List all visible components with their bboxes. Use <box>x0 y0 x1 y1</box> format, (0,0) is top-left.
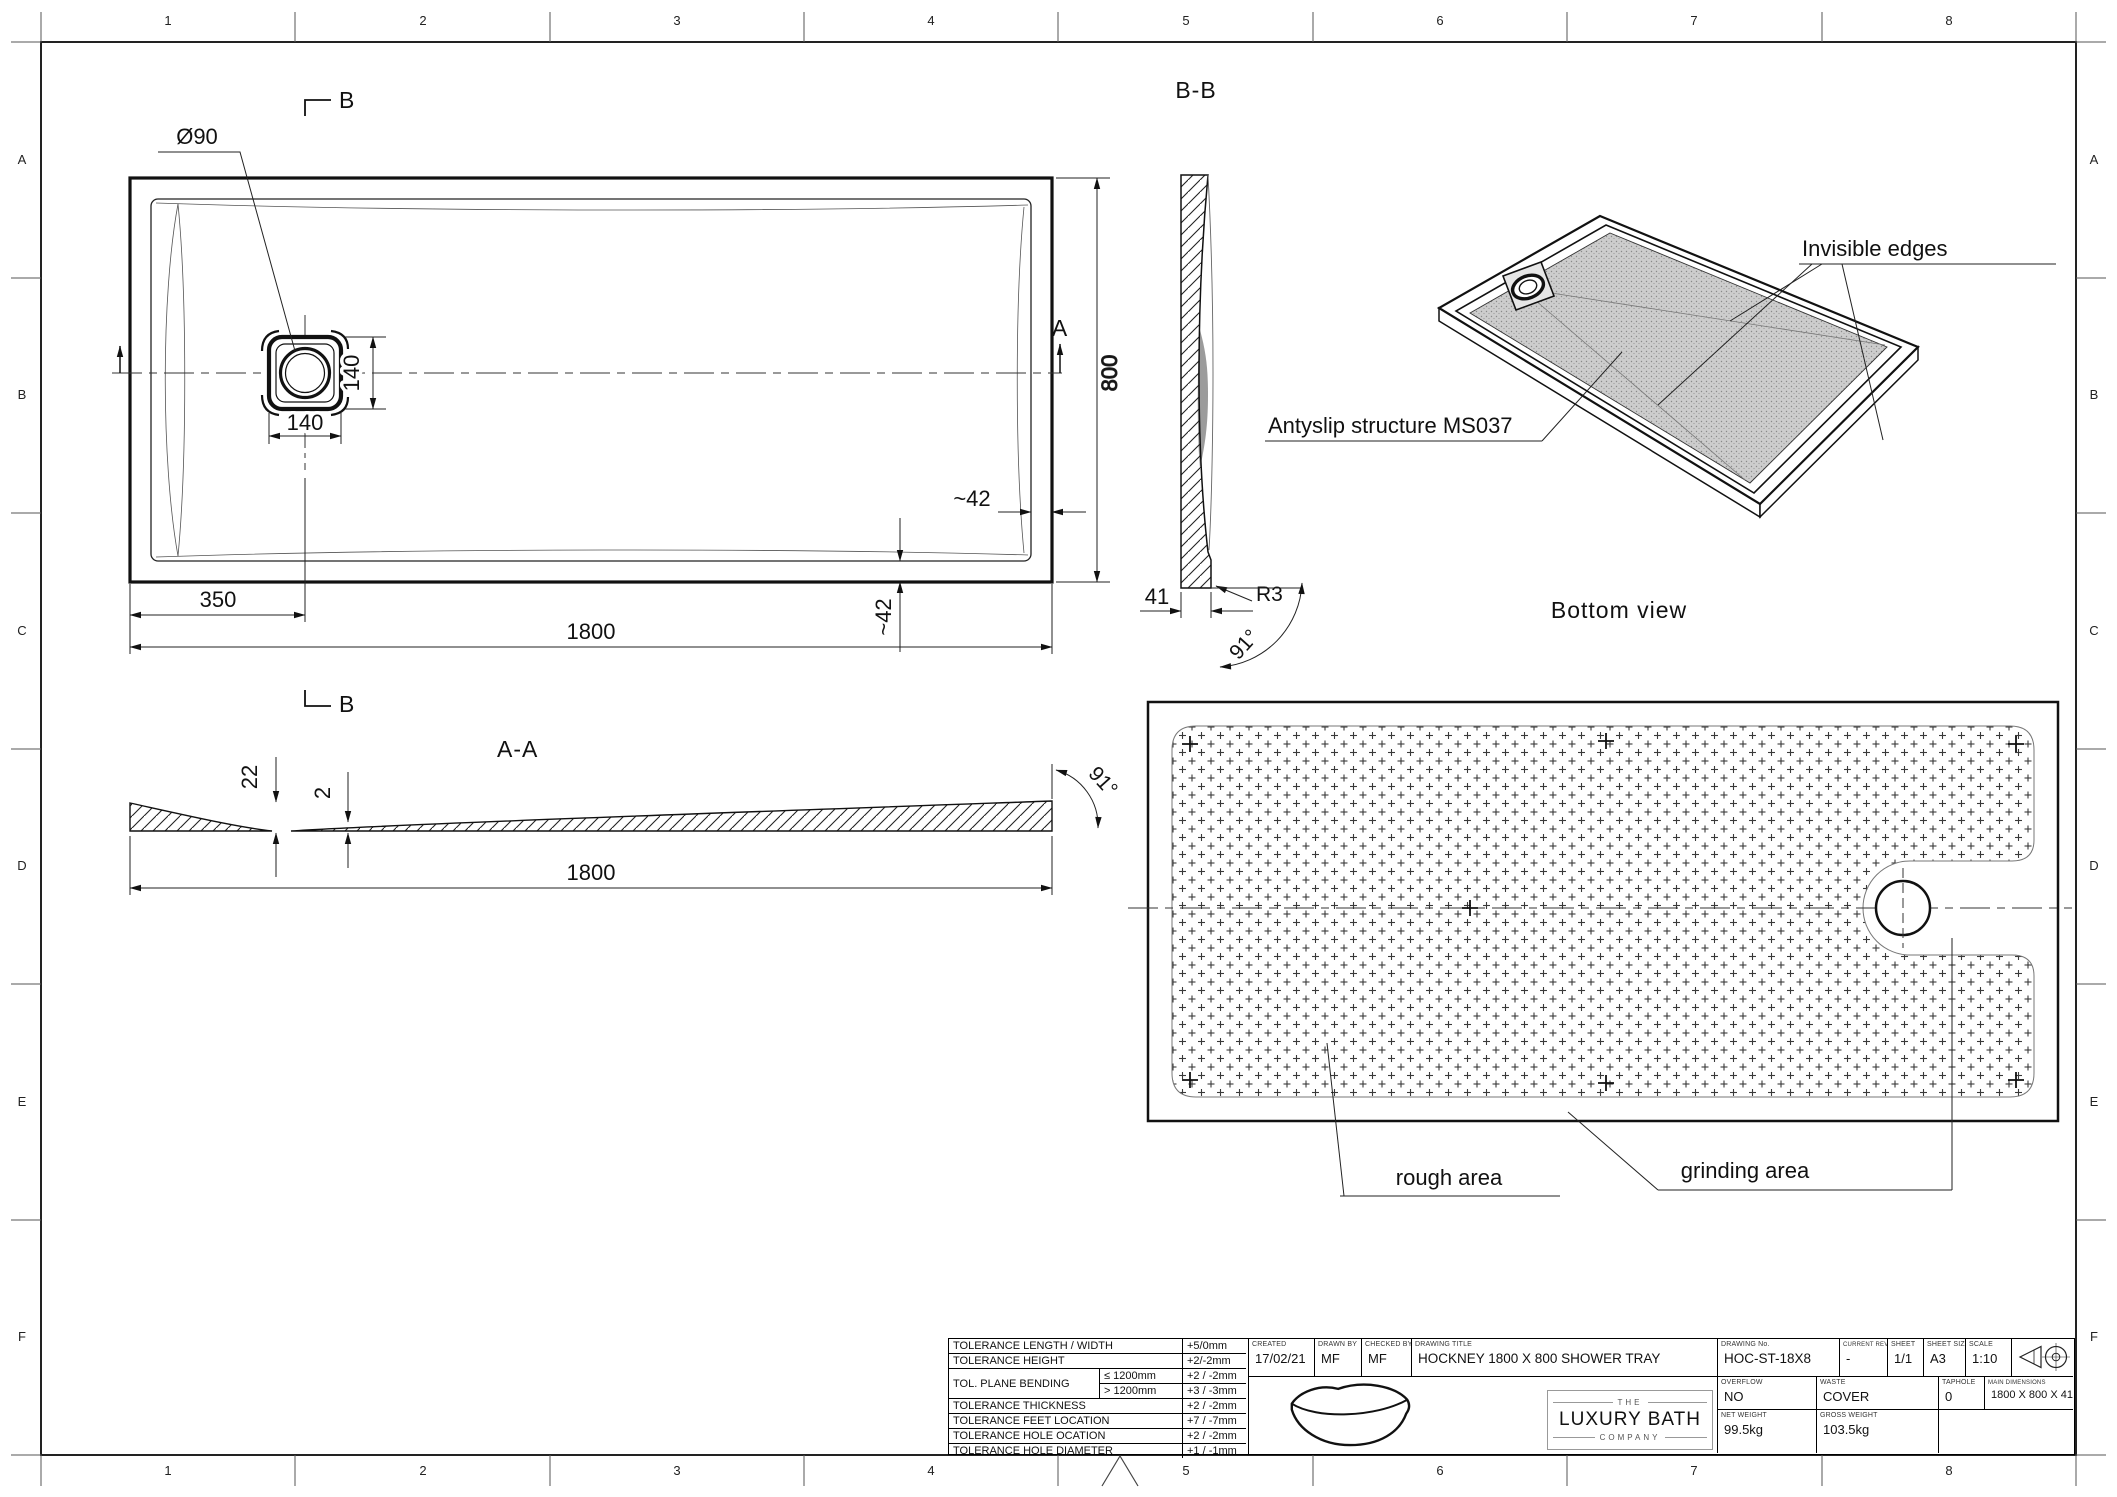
sheet-size-cell: SHEET SIZE A3 <box>1923 1339 1965 1376</box>
marker-b-top: B <box>339 87 355 113</box>
tolerance-label: TOLERANCE HEIGHT <box>949 1354 1182 1369</box>
tolerance-value: +1 / -1mm <box>1182 1444 1246 1458</box>
dim-drain-width: 140 <box>287 410 324 435</box>
grid-row-label: F <box>2083 1329 2105 1344</box>
dim-mid-text: 2 <box>310 787 335 799</box>
current-rev-value: - <box>1840 1349 1887 1366</box>
grid-row-label: D <box>2083 858 2105 873</box>
brand-bottom-text: COMPANY <box>1600 1433 1661 1442</box>
tolerance-label: TOLERANCE HOLE DIAMETER <box>949 1444 1182 1458</box>
section-bb-backface <box>1208 175 1213 550</box>
tolerance-label: TOLERANCE LENGTH / WIDTH <box>949 1339 1182 1354</box>
dim-1800-top: 1800 <box>130 584 1052 654</box>
tolerance-value: +2/-2mm <box>1182 1354 1246 1369</box>
grid-col-label: 7 <box>1683 1463 1705 1478</box>
dim-radius-text: R3 <box>1256 583 1283 606</box>
current-rev-cell: CURRENT REV. - <box>1839 1339 1887 1376</box>
grid-col-label: 1 <box>157 1463 179 1478</box>
antislip-label: Antyslip structure MS037 <box>1268 413 1513 438</box>
taphole-label: TAPHOLE <box>1939 1377 1984 1387</box>
projection-symbol-cell <box>2011 1339 2073 1376</box>
section-b-mark-bottom <box>305 690 331 706</box>
created-cell: CREATED 17/02/21 <box>1249 1339 1314 1376</box>
taphole-value: 0 <box>1939 1387 1984 1404</box>
dim-22: 22 <box>237 757 276 877</box>
first-angle-projection-icon <box>2012 1339 2073 1376</box>
scale-cell: SCALE 1:10 <box>1965 1339 2011 1376</box>
tolerance-value: +2 / -2mm <box>1182 1429 1246 1444</box>
checked-by-label: CHECKED BY <box>1362 1339 1411 1349</box>
main-dimensions-cell: MAIN DIMENSIONS 1800 X 800 X 41 <box>1984 1376 2073 1409</box>
section-bb: B-B 41 R3 91° <box>1140 77 1302 667</box>
dim-rim-right-text: ~42 <box>953 486 990 511</box>
grid-col-label: 5 <box>1175 13 1197 28</box>
grid-col-label: 4 <box>920 1463 942 1478</box>
tolerance-value: +2 / -2mm <box>1182 1399 1246 1414</box>
grid-col-label: 5 <box>1175 1463 1197 1478</box>
current-rev-label: CURRENT REV. <box>1840 1339 1887 1349</box>
overflow-cell: OVERFLOW NO <box>1717 1376 1816 1409</box>
dim-width: 800 <box>1097 355 1122 392</box>
waste-cell: WASTE COVER <box>1816 1376 1938 1409</box>
gross-weight-label: GROSS WEIGHT <box>1817 1410 1938 1420</box>
scale-label: SCALE <box>1966 1339 2011 1349</box>
brand-top-text: THE <box>1618 1398 1643 1407</box>
overflow-value: NO <box>1718 1387 1816 1404</box>
grid-col-label: 3 <box>666 1463 688 1478</box>
sheet-label: SHEET <box>1888 1339 1923 1349</box>
created-label: CREATED <box>1249 1339 1314 1349</box>
tolerance-table: TOLERANCE LENGTH / WIDTH +5/0mm TOLERANC… <box>949 1339 1249 1454</box>
grid-row-label: A <box>2083 152 2105 167</box>
dim-800: 800 <box>1056 178 1122 582</box>
grid-row-label: B <box>2083 387 2105 402</box>
dim-rim-bottom-text: ~42 <box>871 598 896 635</box>
dim-41: 41 <box>1140 584 1253 618</box>
scale-value: 1:10 <box>1966 1349 2011 1366</box>
net-weight-label: NET WEIGHT <box>1718 1410 1816 1420</box>
invisible-edges-label: Invisible edges <box>1802 236 1948 261</box>
dim-offset: 350 <box>200 587 237 612</box>
sheet-size-value: A3 <box>1924 1349 1965 1366</box>
tolerance-condition: ≤ 1200mm <box>1099 1369 1182 1384</box>
overflow-label: OVERFLOW <box>1718 1377 1816 1387</box>
grid-row-label: C <box>11 623 33 638</box>
taphole-cell: TAPHOLE 0 <box>1938 1376 1984 1409</box>
grid-col-label: 3 <box>666 13 688 28</box>
empty-cell <box>1938 1409 2073 1453</box>
grid-col-label: 2 <box>412 1463 434 1478</box>
main-dimensions-label: MAIN DIMENSIONS <box>1985 1377 2073 1387</box>
grid-row-label: F <box>11 1329 33 1344</box>
drawing-title-label: DRAWING TITLE <box>1412 1339 1717 1349</box>
main-dimensions-value: 1800 X 800 X 41 <box>1985 1387 2073 1401</box>
tolerance-label: TOLERANCE THICKNESS <box>949 1399 1182 1414</box>
dim-2: 2 <box>310 772 348 868</box>
bottom-view: rough area grinding area <box>1128 702 2072 1196</box>
net-weight-value: 99.5kg <box>1718 1420 1816 1437</box>
sheet-size-label: SHEET SIZE <box>1924 1339 1965 1349</box>
company-logo: THE LUXURY BATH COMPANY <box>1547 1390 1713 1450</box>
grid-col-label: 1 <box>157 13 179 28</box>
grid-col-label: 4 <box>920 13 942 28</box>
bottom-view-caption: Bottom view <box>1551 597 1687 623</box>
dim-drain-diameter: Ø90 <box>176 124 218 149</box>
bath-sketch-icon <box>1284 1380 1419 1454</box>
tolerance-label: TOL. PLANE BENDING <box>949 1369 1099 1399</box>
grid-col-label: 6 <box>1429 1463 1451 1478</box>
section-aa-left-piece <box>130 803 272 831</box>
drawing-number-cell: DRAWING No. HOC-ST-18X8 <box>1717 1339 1839 1376</box>
tolerance-value: +7 / -7mm <box>1182 1414 1246 1429</box>
drawn-by-cell: DRAWN BY MF <box>1314 1339 1361 1376</box>
section-aa-right-piece <box>291 801 1052 831</box>
grid-col-label: 7 <box>1683 13 1705 28</box>
grid-col-label: 6 <box>1429 13 1451 28</box>
centering-mark <box>1102 1456 1138 1486</box>
grid-row-label: A <box>11 152 33 167</box>
title-block: TOLERANCE LENGTH / WIDTH +5/0mm TOLERANC… <box>948 1338 2075 1455</box>
sheet-cell: SHEET 1/1 <box>1887 1339 1923 1376</box>
dim-base-text: 41 <box>1145 584 1169 609</box>
drawing-number-label: DRAWING No. <box>1718 1339 1839 1349</box>
drawing-sheet: A B B Ø90 140 140 800 <box>0 0 2117 1497</box>
grid-row-label: E <box>11 1094 33 1109</box>
created-value: 17/02/21 <box>1249 1349 1314 1366</box>
marker-b-bottom: B <box>339 691 355 717</box>
angle-91-aa: 91° <box>1052 762 1122 828</box>
brand-main-text: LUXURY BATH <box>1548 1407 1712 1433</box>
dim-edge-text: 22 <box>237 765 262 789</box>
iso-view: Invisible edges Antyslip structure MS037… <box>1265 216 2056 623</box>
tolerance-value: +2 / -2mm <box>1182 1369 1246 1384</box>
brand-area: THE LUXURY BATH COMPANY <box>1249 1376 1717 1454</box>
radius-r3: R3 <box>1216 583 1283 606</box>
top-view: A B B Ø90 140 140 800 <box>112 87 1122 717</box>
drawing-title-cell: DRAWING TITLE HOCKNEY 1800 X 800 SHOWER … <box>1411 1339 1717 1376</box>
drawn-by-label: DRAWN BY <box>1315 1339 1361 1349</box>
section-aa: A-A 22 2 1800 91° <box>130 736 1122 895</box>
marker-a: A <box>1052 315 1068 341</box>
gross-weight-cell: GROSS WEIGHT 103.5kg <box>1816 1409 1938 1453</box>
dim-length-aa: 1800 <box>567 860 616 885</box>
waste-label: WASTE <box>1817 1377 1938 1387</box>
tolerance-value: +3 / -3mm <box>1182 1384 1246 1399</box>
drawing-number-value: HOC-ST-18X8 <box>1718 1349 1839 1366</box>
drain-waste <box>262 331 348 415</box>
waste-value: COVER <box>1817 1387 1938 1404</box>
grinding-area-label: grinding area <box>1681 1158 1810 1183</box>
dim-angle-bb: 91° <box>1225 625 1263 664</box>
grid-col-label: 8 <box>1938 1463 1960 1478</box>
gross-weight-value: 103.5kg <box>1817 1420 1938 1437</box>
section-b-mark-top <box>305 100 331 116</box>
drawn-by-value: MF <box>1315 1349 1361 1366</box>
section-aa-label: A-A <box>497 736 538 762</box>
sheet-value: 1/1 <box>1888 1349 1923 1366</box>
dim-1800-aa: 1800 <box>130 836 1052 895</box>
grid-col-label: 8 <box>1938 13 1960 28</box>
tolerance-condition: > 1200mm <box>1099 1384 1182 1399</box>
drawing-canvas: A B B Ø90 140 140 800 <box>0 0 2117 1497</box>
net-weight-cell: NET WEIGHT 99.5kg <box>1717 1409 1816 1453</box>
grid-row-label: B <box>11 387 33 402</box>
tolerance-label: TOLERANCE FEET LOCATION <box>949 1414 1182 1429</box>
dim-length: 1800 <box>567 619 616 644</box>
tolerance-label: TOLERANCE HOLE OCATION <box>949 1429 1182 1444</box>
tolerance-value: +5/0mm <box>1182 1339 1246 1354</box>
checked-by-cell: CHECKED BY MF <box>1361 1339 1411 1376</box>
grid-col-label: 2 <box>412 13 434 28</box>
rough-area-label: rough area <box>1396 1165 1503 1190</box>
checked-by-value: MF <box>1362 1349 1411 1366</box>
grid-row-label: E <box>2083 1094 2105 1109</box>
drawing-title-value: HOCKNEY 1800 X 800 SHOWER TRAY <box>1412 1349 1717 1366</box>
section-bb-label: B-B <box>1175 77 1216 103</box>
grid-row-label: C <box>2083 623 2105 638</box>
grid-row-label: D <box>11 858 33 873</box>
dim-drain-height: 140 <box>339 355 364 392</box>
